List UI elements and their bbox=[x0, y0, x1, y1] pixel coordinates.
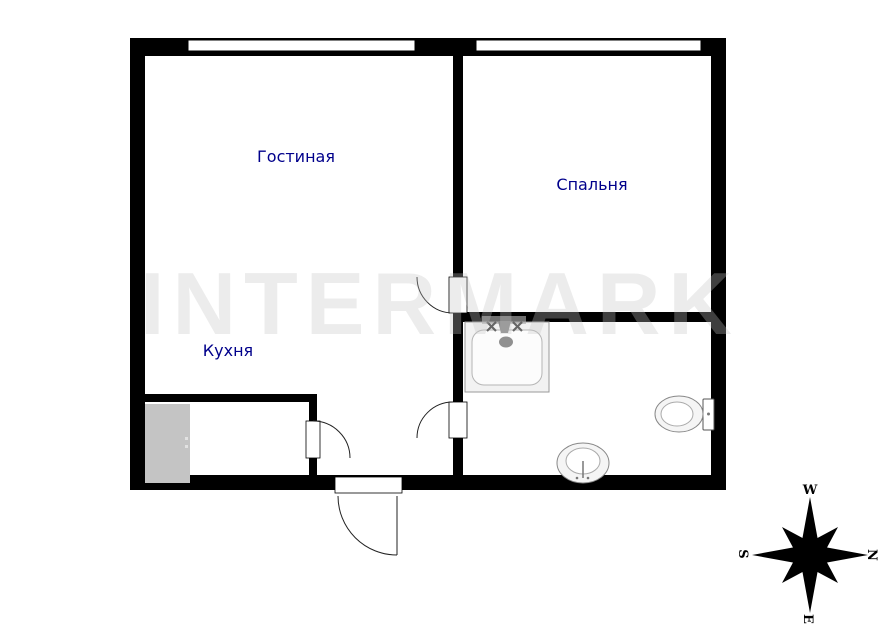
wall-bottom bbox=[130, 475, 726, 490]
door-arc-bathroom bbox=[417, 402, 453, 438]
room-label-living: Гостиная bbox=[257, 147, 335, 166]
room-label-kitchen: Кухня bbox=[203, 341, 253, 360]
wall-left bbox=[130, 38, 145, 490]
washbasin-icon bbox=[557, 443, 609, 483]
door-jamb-closet bbox=[306, 421, 320, 458]
compass-letter-top: W bbox=[802, 483, 818, 498]
toilet-icon bbox=[655, 396, 714, 432]
compass-letter-left: S bbox=[735, 549, 750, 558]
door-arc-living bbox=[417, 277, 453, 313]
entrance-door-arc bbox=[338, 496, 397, 555]
window-bedroom bbox=[476, 40, 701, 51]
doors bbox=[306, 277, 467, 555]
window-living-room bbox=[188, 40, 415, 51]
compass-rose-icon: W N E S bbox=[735, 483, 879, 624]
entrance-threshold bbox=[335, 477, 402, 493]
floor-plan-drawing: Гостиная Спальня Кухня W N E S bbox=[0, 0, 885, 632]
door-jamb-living bbox=[449, 277, 467, 313]
door-jamb-bathroom bbox=[449, 402, 467, 438]
floor-plan-page: Гостиная Спальня Кухня W N E S INTERMARK bbox=[0, 0, 885, 632]
walls bbox=[130, 38, 726, 490]
compass-letter-bottom: E bbox=[800, 614, 815, 624]
bathtub-icon bbox=[465, 316, 549, 392]
bathtub-drain bbox=[499, 337, 513, 348]
compass-letter-right: N bbox=[864, 549, 879, 561]
wardrobe-icon bbox=[145, 404, 190, 483]
room-label-bedroom: Спальня bbox=[556, 175, 627, 194]
wall-closet-top bbox=[145, 394, 317, 402]
